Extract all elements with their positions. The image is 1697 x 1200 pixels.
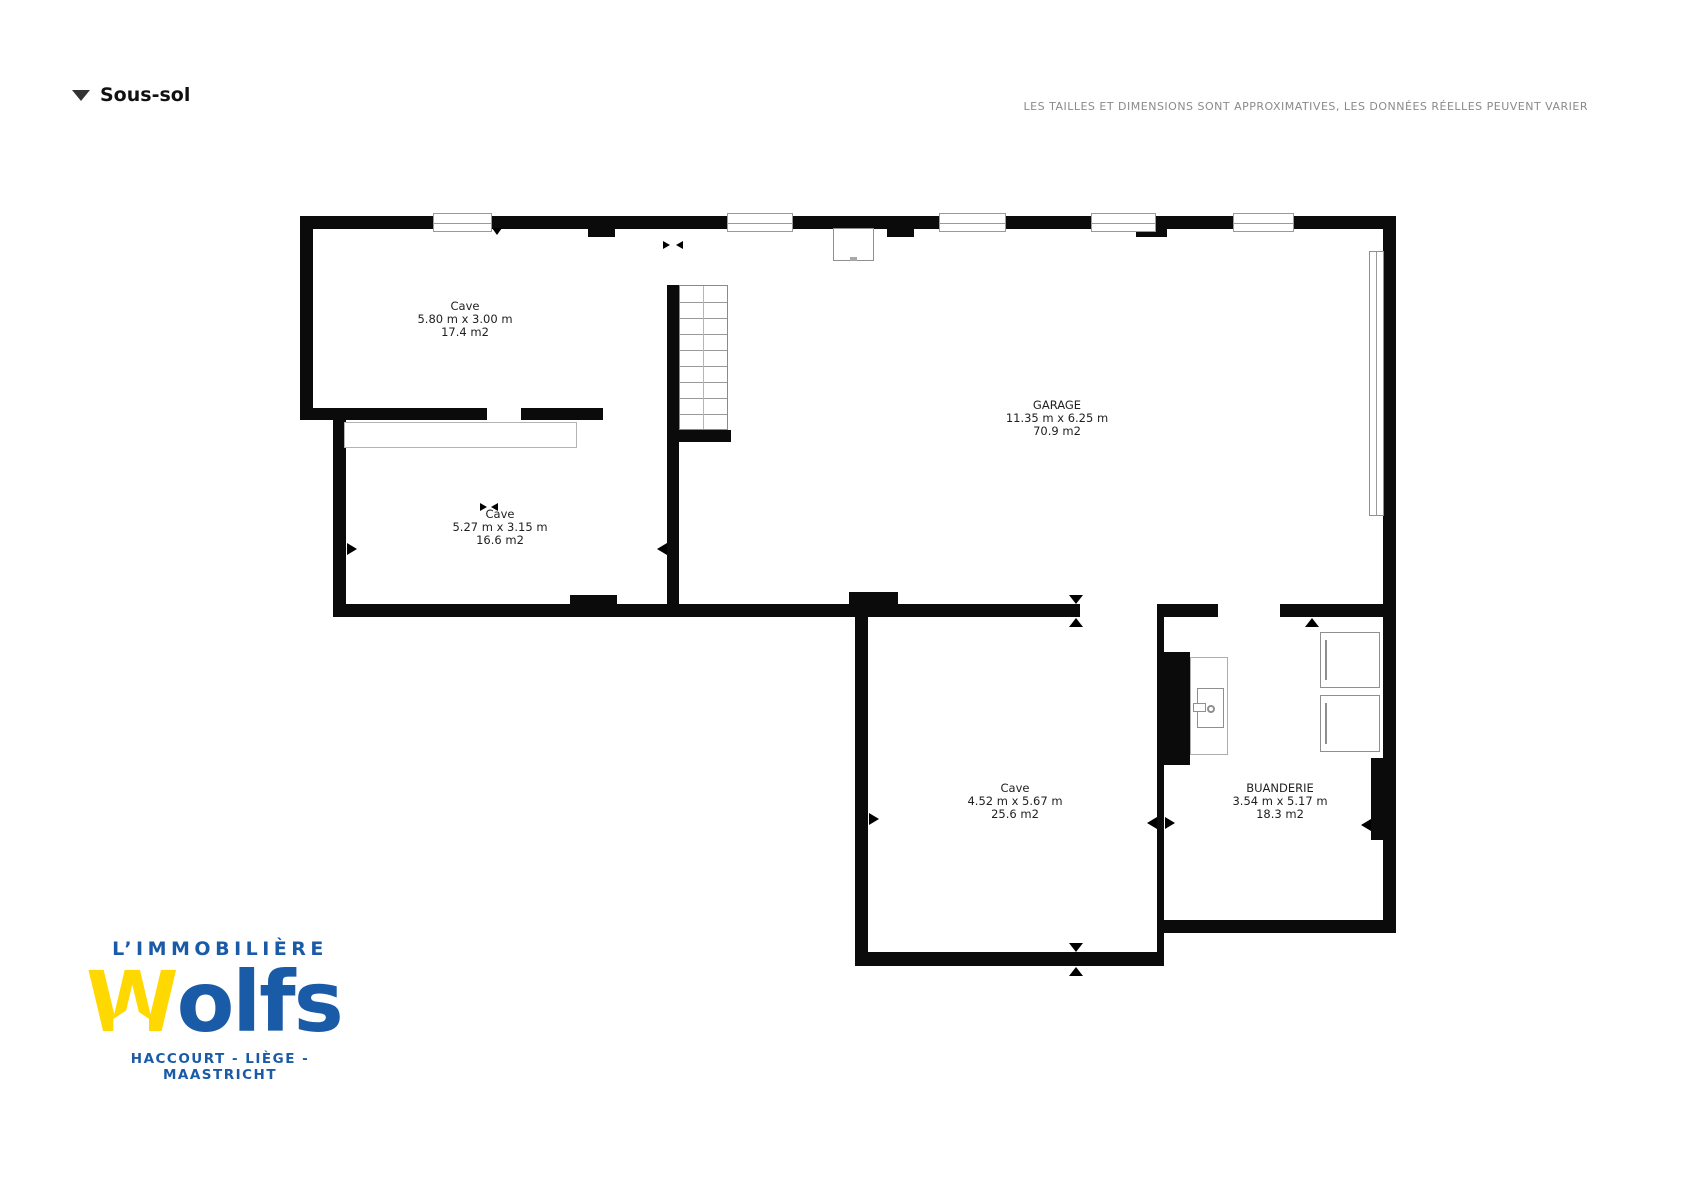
logo-cities: HACCOURT - LIÈGE - MAASTRICHT (85, 1051, 355, 1083)
wall-top-pier-1 (588, 216, 615, 237)
appliance-dryer (1320, 695, 1380, 752)
wall-top-pier-2 (887, 216, 914, 237)
staircase (679, 285, 728, 430)
floorplan-page: Sous-sol LES TAILLES ET DIMENSIONS SONT … (0, 0, 1697, 1200)
page-title[interactable]: Sous-sol (100, 84, 190, 106)
logo-wordmark: Wolfs (86, 960, 342, 1044)
room-area: 70.9 m2 (1006, 425, 1108, 438)
room-label-cave-3: Cave 4.52 m x 5.67 m 25.6 m2 (967, 782, 1062, 821)
collapse-triangle-icon[interactable] (72, 90, 90, 101)
wall-buanderie-top-b (1280, 604, 1383, 617)
room-label-buanderie: BUANDERIE 3.54 m x 5.17 m 18.3 m2 (1232, 782, 1327, 821)
room-label-cave-2: Cave 5.27 m x 3.15 m 16.6 m2 (452, 508, 547, 547)
wall-stair-bottom (667, 430, 731, 442)
door-marker (1069, 943, 1083, 952)
room-label-garage: GARAGE 11.35 m x 6.25 m 70.9 m2 (1006, 399, 1108, 438)
door-marker (1147, 817, 1157, 829)
door-marker (347, 543, 357, 555)
door-marker (676, 241, 683, 249)
logo-w-letter: W (86, 960, 177, 1044)
logo-rest-letters: olfs (177, 953, 342, 1051)
door-marker (1069, 595, 1083, 604)
laundry-sink (1190, 657, 1228, 755)
door-marker (657, 543, 667, 555)
window (1233, 213, 1294, 232)
fixture-tick (850, 257, 857, 261)
wall-right (1383, 216, 1396, 933)
room-area: 17.4 m2 (417, 326, 512, 339)
door-marker (1069, 618, 1083, 627)
door-marker (1361, 819, 1371, 831)
wall-stair (667, 285, 679, 617)
door-marker (869, 813, 879, 825)
wall-buanderie-pillar (1162, 652, 1190, 765)
room-label-cave-1: Cave 5.80 m x 3.00 m 17.4 m2 (417, 300, 512, 339)
appliance-washer (1320, 632, 1380, 688)
shelf-outline (344, 422, 577, 448)
door-marker (492, 228, 502, 235)
wall-pier-a (570, 595, 617, 617)
door-marker (663, 241, 670, 249)
room-area: 16.6 m2 (452, 534, 547, 547)
wall-buanderie-top-a (1157, 604, 1218, 617)
wall-garage-bottom (333, 604, 1080, 617)
wall-buanderie-bottom (1157, 920, 1396, 933)
room-area: 18.3 m2 (1232, 808, 1327, 821)
window (1091, 213, 1156, 232)
wall-bottomcave-bottom (855, 952, 1164, 966)
garage-door (1369, 251, 1384, 516)
door-marker (1165, 817, 1175, 829)
wall-cave1-bottom-a (300, 408, 487, 420)
window (939, 213, 1006, 232)
door-marker (1069, 967, 1083, 976)
door-marker (1305, 618, 1319, 627)
disclaimer-text: LES TAILLES ET DIMENSIONS SONT APPROXIMA… (1024, 100, 1588, 113)
wall-bottomcave-left (855, 604, 868, 966)
room-area: 25.6 m2 (967, 808, 1062, 821)
wall-left (300, 216, 313, 420)
window (727, 213, 793, 232)
window (433, 213, 492, 232)
wall-cave1-bottom-b (521, 408, 603, 420)
wall-right-pier (1371, 758, 1383, 840)
